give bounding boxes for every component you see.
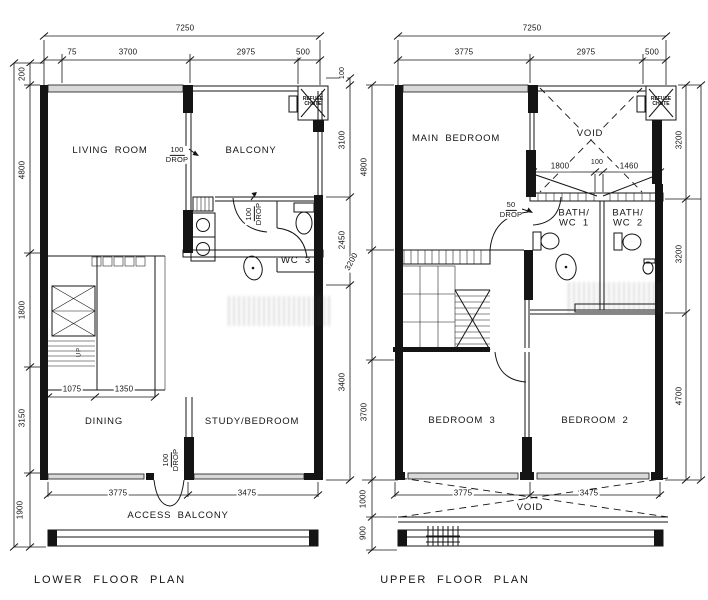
dim-lower-bottom-3775: 3775 [108, 490, 129, 499]
room-label-study: STUDY/BEDROOM [205, 417, 299, 427]
dim-upper-bath-1800: 1800 [550, 163, 571, 172]
dim-upper-bath-1460: 1460 [619, 163, 640, 172]
note-drop-entry: 100DROP [162, 449, 180, 471]
dim-upper-top-3775: 3775 [454, 49, 475, 58]
dim-lower-left-1900: 1900 [17, 500, 26, 521]
note-drop-kitchen: 100DROP [245, 203, 263, 225]
upper-stairs-wardrobe [400, 250, 490, 350]
dim-lower-top-total: 7250 [175, 25, 196, 34]
dim-lower-right-100: 100 [339, 66, 347, 80]
dim-lower-top-500: 500 [295, 49, 311, 58]
room-label-bedroom3: BEDROOM 3 [428, 416, 495, 426]
dim-lower-left-4800: 4800 [19, 160, 28, 181]
room-label-access-balcony: ACCESS BALCONY [127, 511, 228, 521]
dim-upper-left-3700: 3700 [361, 402, 370, 423]
dim-lower-right-3100: 3100 [339, 130, 348, 151]
room-label-bath-wc2: BATH/WC 2 [612, 209, 643, 230]
dim-lower-top-2975: 2975 [236, 49, 257, 58]
upper-void-top [533, 88, 660, 196]
dim-upper-top-total: 7250 [522, 25, 543, 34]
room-label-balcony: BALCONY [225, 146, 276, 156]
lower-access-balcony-slab [48, 530, 318, 546]
dim-lower-top-75: 75 [66, 49, 77, 58]
note-drop-living: 100DROP [166, 146, 188, 164]
dim-upper-bottom-3475: 3475 [579, 490, 600, 499]
note-up-stairs: UP [77, 347, 84, 357]
room-label-living: LIVING ROOM [72, 146, 147, 156]
floor-plan-drawing: 7250 75 3700 2975 500 200 4800 1800 3150… [0, 0, 708, 600]
dim-lower-left-1800: 1800 [19, 300, 28, 321]
dim-upper-bottom-3775: 3775 [453, 490, 474, 499]
dim-lower-top-3700: 3700 [118, 49, 139, 58]
dim-upper-right-4700: 4700 [676, 386, 685, 407]
watermark [568, 282, 663, 314]
room-label-wc3: WC 3 [281, 256, 311, 266]
dim-upper-top-2975: 2975 [576, 49, 597, 58]
lower-drop-arrows [189, 149, 257, 200]
dim-lower-left-200: 200 [19, 66, 28, 82]
lower-stairs [48, 256, 165, 397]
lower-plan-title: LOWER FLOOR PLAN [34, 574, 186, 586]
dim-lower-right-3400: 3400 [339, 372, 348, 393]
dim-lower-stair-1075: 1075 [62, 386, 83, 395]
upper-void-bottom [398, 478, 668, 522]
dim-lower-stair-1350: 1350 [114, 386, 135, 395]
watermark [228, 296, 332, 326]
dim-lower-right-2450: 2450 [339, 230, 348, 251]
upper-fixtures [533, 232, 655, 282]
dim-upper-right-3200a: 3200 [676, 130, 685, 151]
room-label-void-bottom: VOID [515, 503, 545, 513]
room-label-main-bedroom: MAIN BEDROOM [412, 134, 500, 144]
refuse-chute-label-lower: REFUSECHUTE [303, 97, 323, 107]
room-label-void-top: VOID [575, 129, 605, 139]
dim-upper-bath-100: 100 [590, 159, 604, 167]
refuse-chute-label-upper: REFUSECHUTE [651, 97, 671, 107]
note-drop-50: 50DROP [500, 201, 522, 219]
dim-upper-left-1000: 1000 [360, 489, 369, 510]
room-label-dining: DINING [85, 417, 123, 427]
dim-upper-left-4800: 4800 [361, 157, 370, 178]
dim-upper-left-900: 900 [360, 525, 369, 541]
dim-upper-right-3200b: 3200 [676, 244, 685, 265]
dim-lower-left-3150: 3150 [19, 408, 28, 429]
room-label-bedroom2: BEDROOM 2 [561, 416, 628, 426]
dim-lower-bottom-3475: 3475 [237, 490, 258, 499]
upper-bottom-slab [398, 526, 663, 546]
dim-upper-top-500: 500 [644, 49, 660, 58]
room-label-bath-wc1: BATH/WC 1 [558, 209, 589, 230]
upper-plan-title: UPPER FLOOR PLAN [380, 574, 529, 586]
